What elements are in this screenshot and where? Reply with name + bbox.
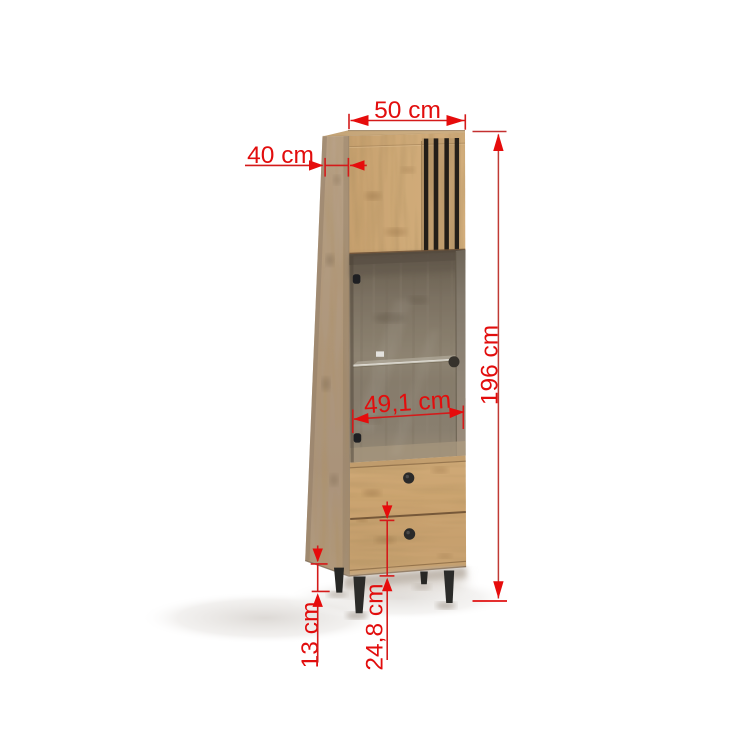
svg-text:196 cm: 196 cm (476, 325, 503, 405)
svg-text:24,8 cm: 24,8 cm (362, 583, 389, 670)
svg-text:13 cm: 13 cm (297, 602, 324, 669)
